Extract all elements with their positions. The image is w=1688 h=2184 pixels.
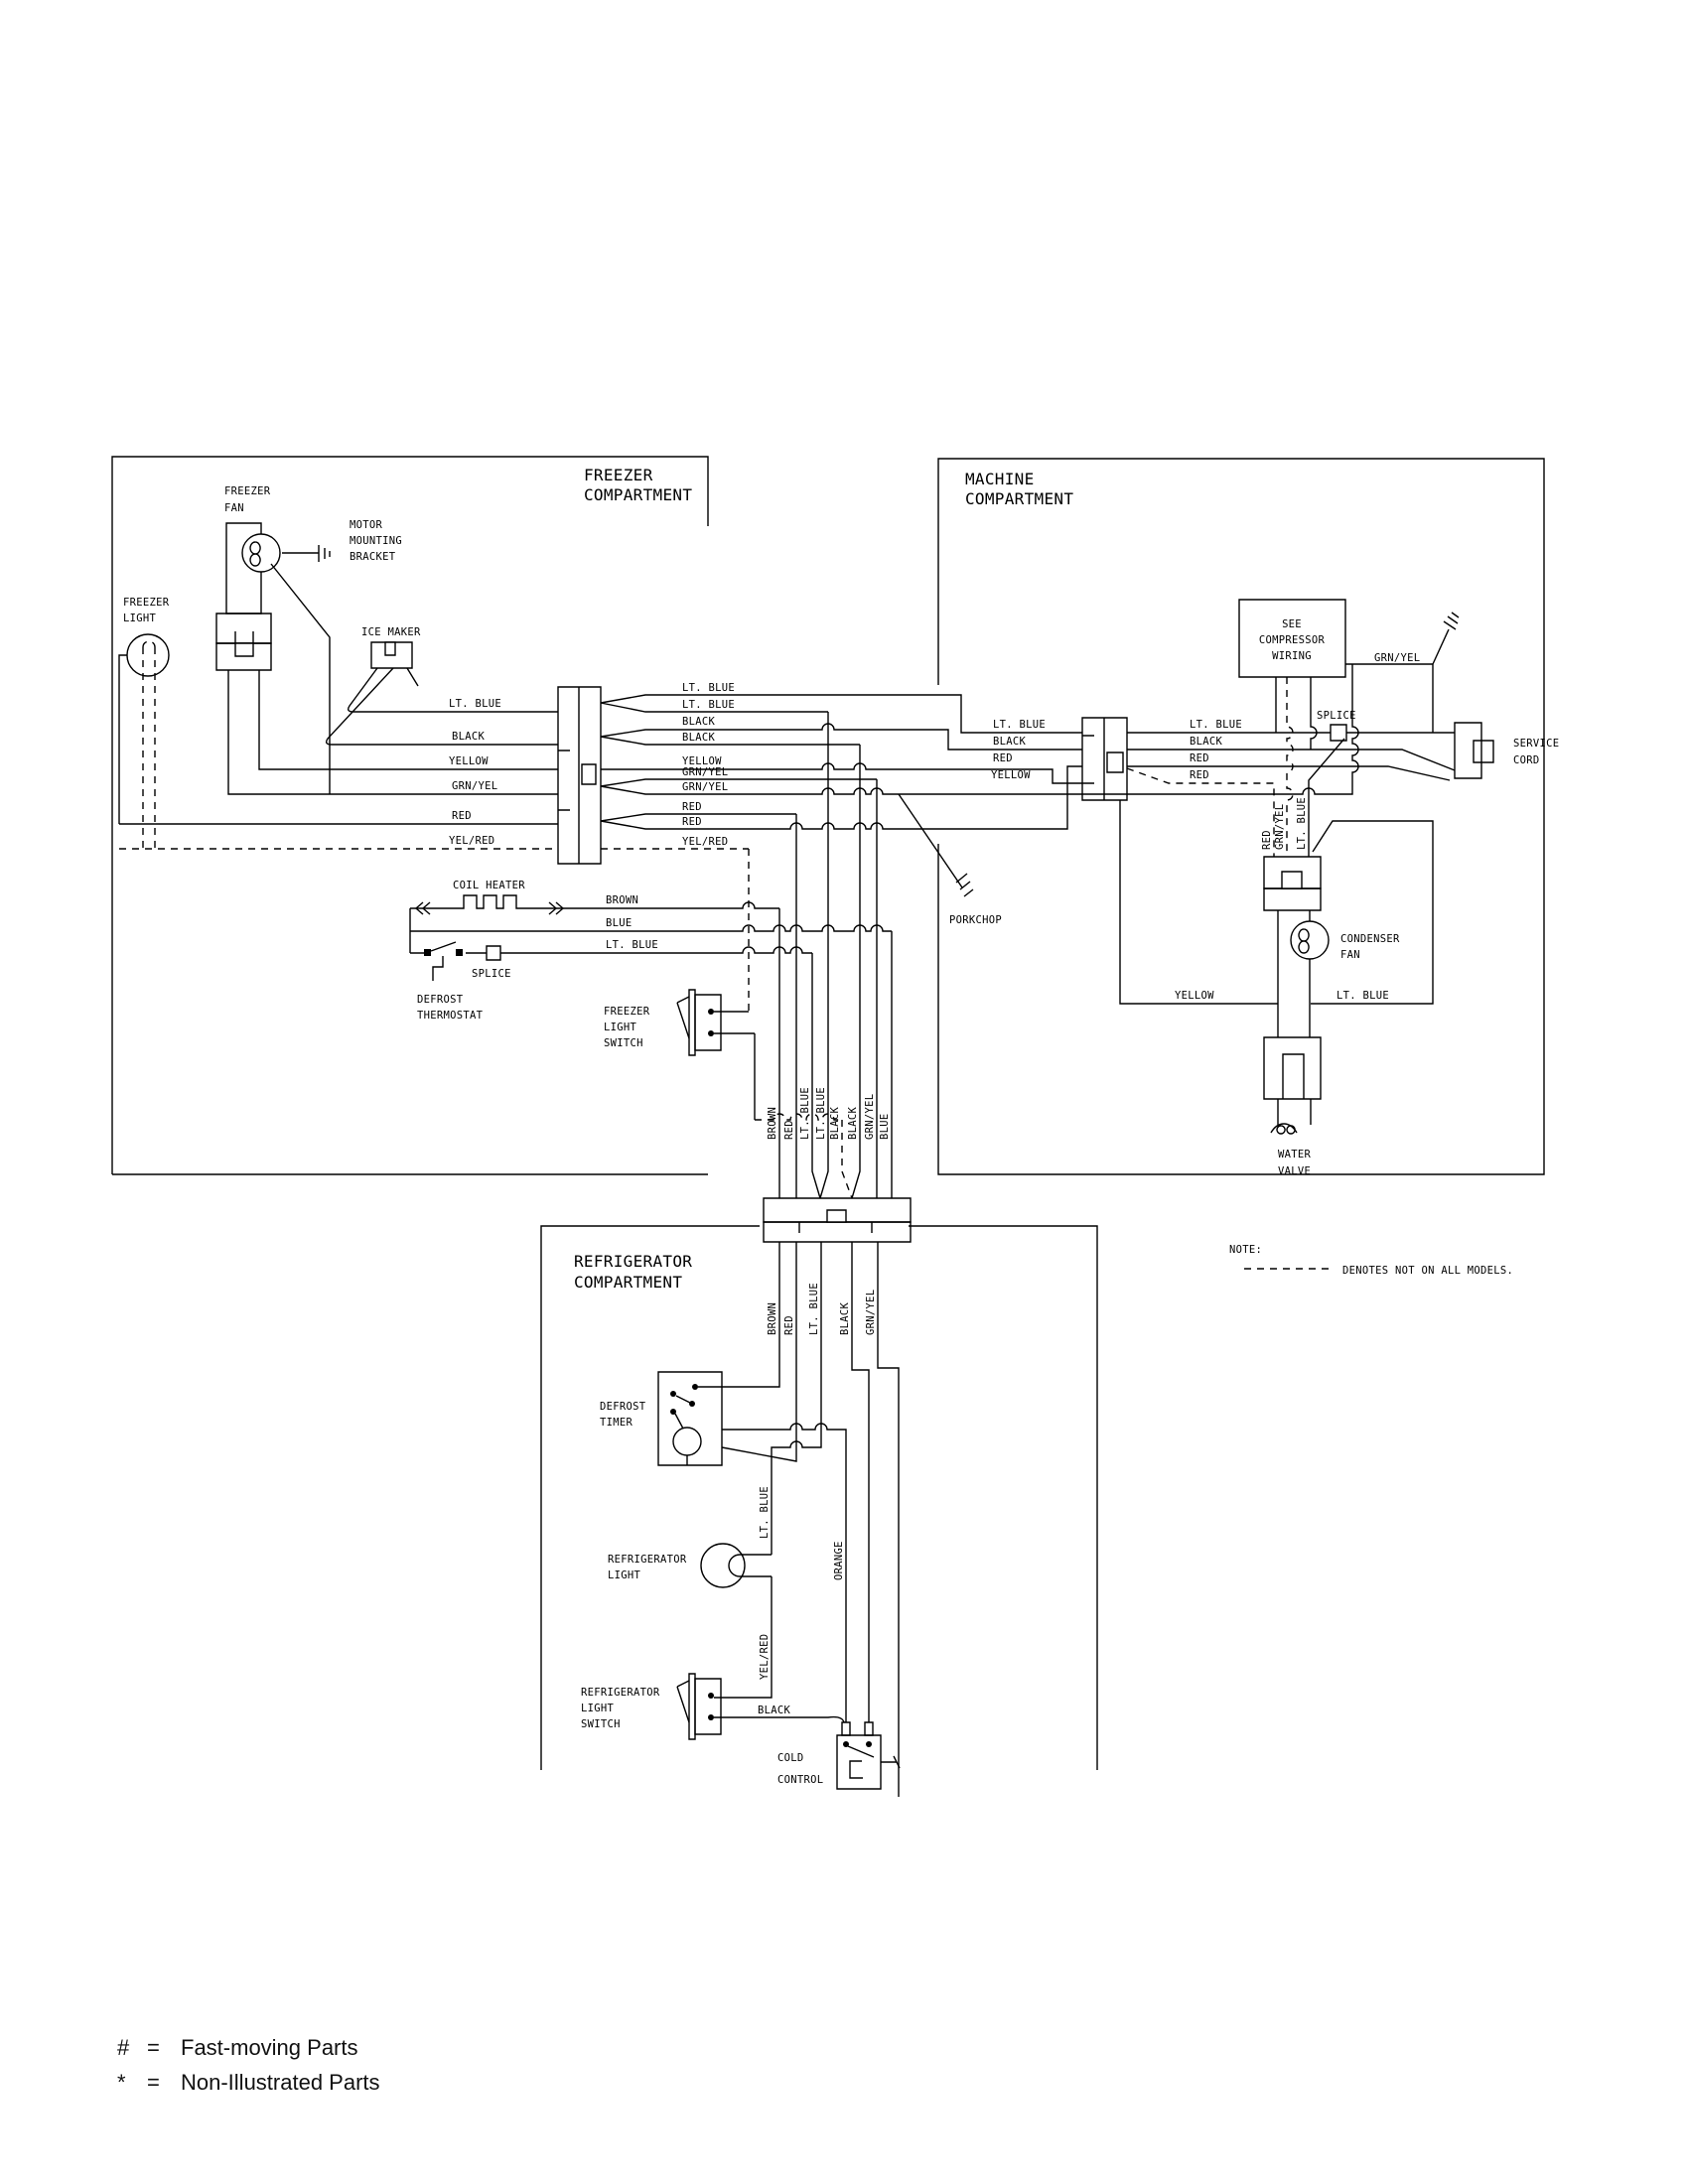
diagram-label: REFRIGERATOR xyxy=(608,1554,687,1566)
legend-equals: = xyxy=(147,2035,181,2061)
diagram-label: YELLOW xyxy=(991,769,1031,781)
diagram-label: SWITCH xyxy=(604,1037,643,1049)
diagram-label: GRN/YEL xyxy=(452,780,497,792)
diagram-label: COLD xyxy=(777,1752,804,1764)
diagram-label: COMPRESSOR xyxy=(1259,634,1326,646)
water-valve xyxy=(1264,1037,1321,1134)
diagram-label: FAN xyxy=(1340,949,1360,961)
defrost-timer xyxy=(658,1372,722,1465)
diagram-label: RED xyxy=(783,1120,795,1140)
cold-control xyxy=(837,1722,900,1789)
freezer-compartment-box xyxy=(112,457,708,1174)
diagram-label: MOTOR xyxy=(350,519,382,531)
machine-wiring xyxy=(1120,613,1459,1037)
diagram-label: TIMER xyxy=(600,1417,633,1429)
diagram-label: PORKCHOP xyxy=(949,914,1002,926)
diagram-label: LT. BLUE xyxy=(799,1087,811,1140)
diagram-label: YELLOW xyxy=(449,755,489,767)
diagram-label: SPLICE xyxy=(1317,710,1356,722)
diagram-label: SWITCH xyxy=(581,1718,621,1730)
diagram-label: RED xyxy=(1261,830,1273,850)
diagram-label: YELLOW xyxy=(1175,990,1214,1002)
diagram-label: COIL HEATER xyxy=(453,880,525,891)
freezer-wires xyxy=(119,668,558,849)
diagram-label: FREEZER xyxy=(123,597,170,609)
wiring-diagram-page: FREEZERFANMOTORMOUNTINGBRACKETFREEZERLIG… xyxy=(0,0,1688,2184)
diagram-label: LT. BLUE xyxy=(759,1486,771,1539)
diagram-label: LT. BLUE xyxy=(606,939,658,951)
refrigerator-light-bulb-icon xyxy=(701,1544,745,1587)
freezer-light-bulb-icon xyxy=(127,634,169,676)
diagram-label: YEL/RED xyxy=(449,835,494,847)
refrigerator-wiring-diagram: FREEZERFANMOTORMOUNTINGBRACKETFREEZERLIG… xyxy=(0,0,1688,2184)
diagram-label: BROWN xyxy=(767,1302,778,1335)
diagram-label: GRN/YEL xyxy=(682,766,728,778)
diagram-labels: FREEZERFANMOTORMOUNTINGBRACKETFREEZERLIG… xyxy=(123,466,1559,1786)
diagram-label: RED xyxy=(783,1315,795,1335)
diagram-label: LIGHT xyxy=(608,1570,640,1581)
freezer-light xyxy=(119,634,558,849)
diagram-label: LIGHT xyxy=(604,1022,636,1033)
connector-block-2 xyxy=(1082,718,1127,800)
diagram-label: COMPARTMENT xyxy=(574,1273,682,1292)
diagram-label: LT. BLUE xyxy=(1336,990,1389,1002)
diagram-label: LIGHT xyxy=(123,613,156,624)
diagram-label: SERVICE xyxy=(1513,738,1559,750)
porkchop-ground xyxy=(899,794,973,896)
diagram-label: CORD xyxy=(1513,754,1540,766)
diagram-label: WATER xyxy=(1278,1149,1311,1160)
diagram-label: NOTE: xyxy=(1229,1244,1262,1256)
diagram-label: BLACK xyxy=(829,1107,841,1140)
diagram-label: LT. BLUE xyxy=(1296,797,1308,850)
diagram-label: WIRING xyxy=(1272,650,1312,662)
diagram-label: COMPARTMENT xyxy=(965,489,1073,508)
condenser-fan-motor-icon xyxy=(1291,921,1329,959)
diagram-label: GRN/YEL xyxy=(1374,652,1420,664)
diagram-label: BRACKET xyxy=(350,551,396,563)
diagram-label: BROWN xyxy=(606,894,638,906)
refrigerator-light-switch xyxy=(677,1674,721,1739)
service-cord xyxy=(1455,723,1493,778)
legend-label: Fast-moving Parts xyxy=(181,2035,358,2061)
diagram-label: LT. BLUE xyxy=(808,1283,820,1335)
legend-row: * = Non-Illustrated Parts xyxy=(117,2070,380,2105)
diagram-label: LIGHT xyxy=(581,1703,614,1714)
diagram-label: GRN/YEL xyxy=(1274,804,1286,850)
diagram-label: BLACK xyxy=(682,716,715,728)
legend-equals: = xyxy=(147,2070,181,2096)
connector-block-1 xyxy=(558,687,601,864)
ice-maker xyxy=(371,642,418,686)
diagram-label: GRN/YEL xyxy=(682,781,728,793)
connector-block-3 xyxy=(764,1198,911,1242)
splice-icon xyxy=(487,946,500,960)
diagram-label: ICE MAKER xyxy=(361,626,421,638)
splice-icon xyxy=(1331,725,1346,741)
fan-motor-icon xyxy=(242,534,280,572)
diagram-label: BLACK xyxy=(682,732,715,744)
diagram-label: ORANGE xyxy=(833,1541,845,1580)
diagram-label: RED xyxy=(1190,752,1209,764)
diagram-label: DENOTES NOT ON ALL MODELS. xyxy=(1342,1265,1513,1277)
bracket-ground-wire xyxy=(271,564,330,794)
diagram-label: REFRIGERATOR xyxy=(574,1252,692,1271)
diagram-label: BROWN xyxy=(767,1107,778,1140)
diagram-label: FREEZER xyxy=(604,1006,650,1018)
diagram-label: LT. BLUE xyxy=(682,682,735,694)
diagram-label: BLUE xyxy=(879,1114,891,1141)
motor-mounting-bracket xyxy=(271,545,330,794)
diagram-label: REFRIGERATOR xyxy=(581,1687,660,1699)
freezer-fan xyxy=(216,523,280,670)
diagram-label: FREEZER xyxy=(224,485,271,497)
condenser-fan xyxy=(1264,857,1329,959)
refrigerator-light xyxy=(701,1544,772,1587)
diagram-label: DEFROST xyxy=(600,1401,646,1413)
diagram-label: GRN/YEL xyxy=(865,1290,877,1335)
diagram-label: BLACK xyxy=(452,731,485,743)
diagram-label: CONDENSER xyxy=(1340,933,1400,945)
timer-motor-icon xyxy=(673,1428,701,1455)
diagram-label: LT. BLUE xyxy=(682,699,735,711)
diagram-label: RED xyxy=(993,752,1013,764)
diagram-label: BLACK xyxy=(839,1302,851,1335)
diagram-label: BLACK xyxy=(1190,736,1222,748)
parts-legend: # = Fast-moving Parts * = Non-Illustrate… xyxy=(117,2035,380,2105)
diagram-label: LT. BLUE xyxy=(449,698,501,710)
diagram-label: BLACK xyxy=(993,736,1026,748)
diagram-label: VALVE xyxy=(1278,1165,1311,1177)
diagram-label: FAN xyxy=(224,502,244,514)
diagram-label: YEL/RED xyxy=(682,836,728,848)
diagram-label: FREEZER xyxy=(584,466,653,484)
diagram-label: SEE xyxy=(1282,618,1302,630)
diagram-label: BLACK xyxy=(758,1705,790,1716)
diagram-label: SPLICE xyxy=(472,968,511,980)
diagram-label: LT. BLUE xyxy=(993,719,1046,731)
diagram-label: LT. BLUE xyxy=(815,1087,827,1140)
diagram-label: RED xyxy=(1190,769,1209,781)
diagram-label: CONTROL xyxy=(777,1774,823,1786)
diagram-label: MACHINE xyxy=(965,470,1035,488)
legend-symbol: * xyxy=(117,2070,147,2096)
legend-symbol: # xyxy=(117,2035,147,2061)
diagram-label: GRN/YEL xyxy=(864,1094,876,1140)
diagram-label: RED xyxy=(682,801,702,813)
diagram-label: RED xyxy=(452,810,472,822)
diagram-label: DEFROST xyxy=(417,994,464,1006)
diagram-label: BLUE xyxy=(606,917,633,929)
diagram-label: YEL/RED xyxy=(759,1634,771,1680)
diagram-label: BLACK xyxy=(847,1107,859,1140)
legend-row: # = Fast-moving Parts xyxy=(117,2035,380,2070)
diagram-label: COMPARTMENT xyxy=(584,485,692,504)
machine-compartment-box xyxy=(938,459,1544,1174)
diagram-label: RED xyxy=(682,816,702,828)
diagram-label: LT. BLUE xyxy=(1190,719,1242,731)
diagram-label: THERMOSTAT xyxy=(417,1010,484,1022)
legend-label: Non-Illustrated Parts xyxy=(181,2070,380,2096)
diagram-label: MOUNTING xyxy=(350,535,402,547)
